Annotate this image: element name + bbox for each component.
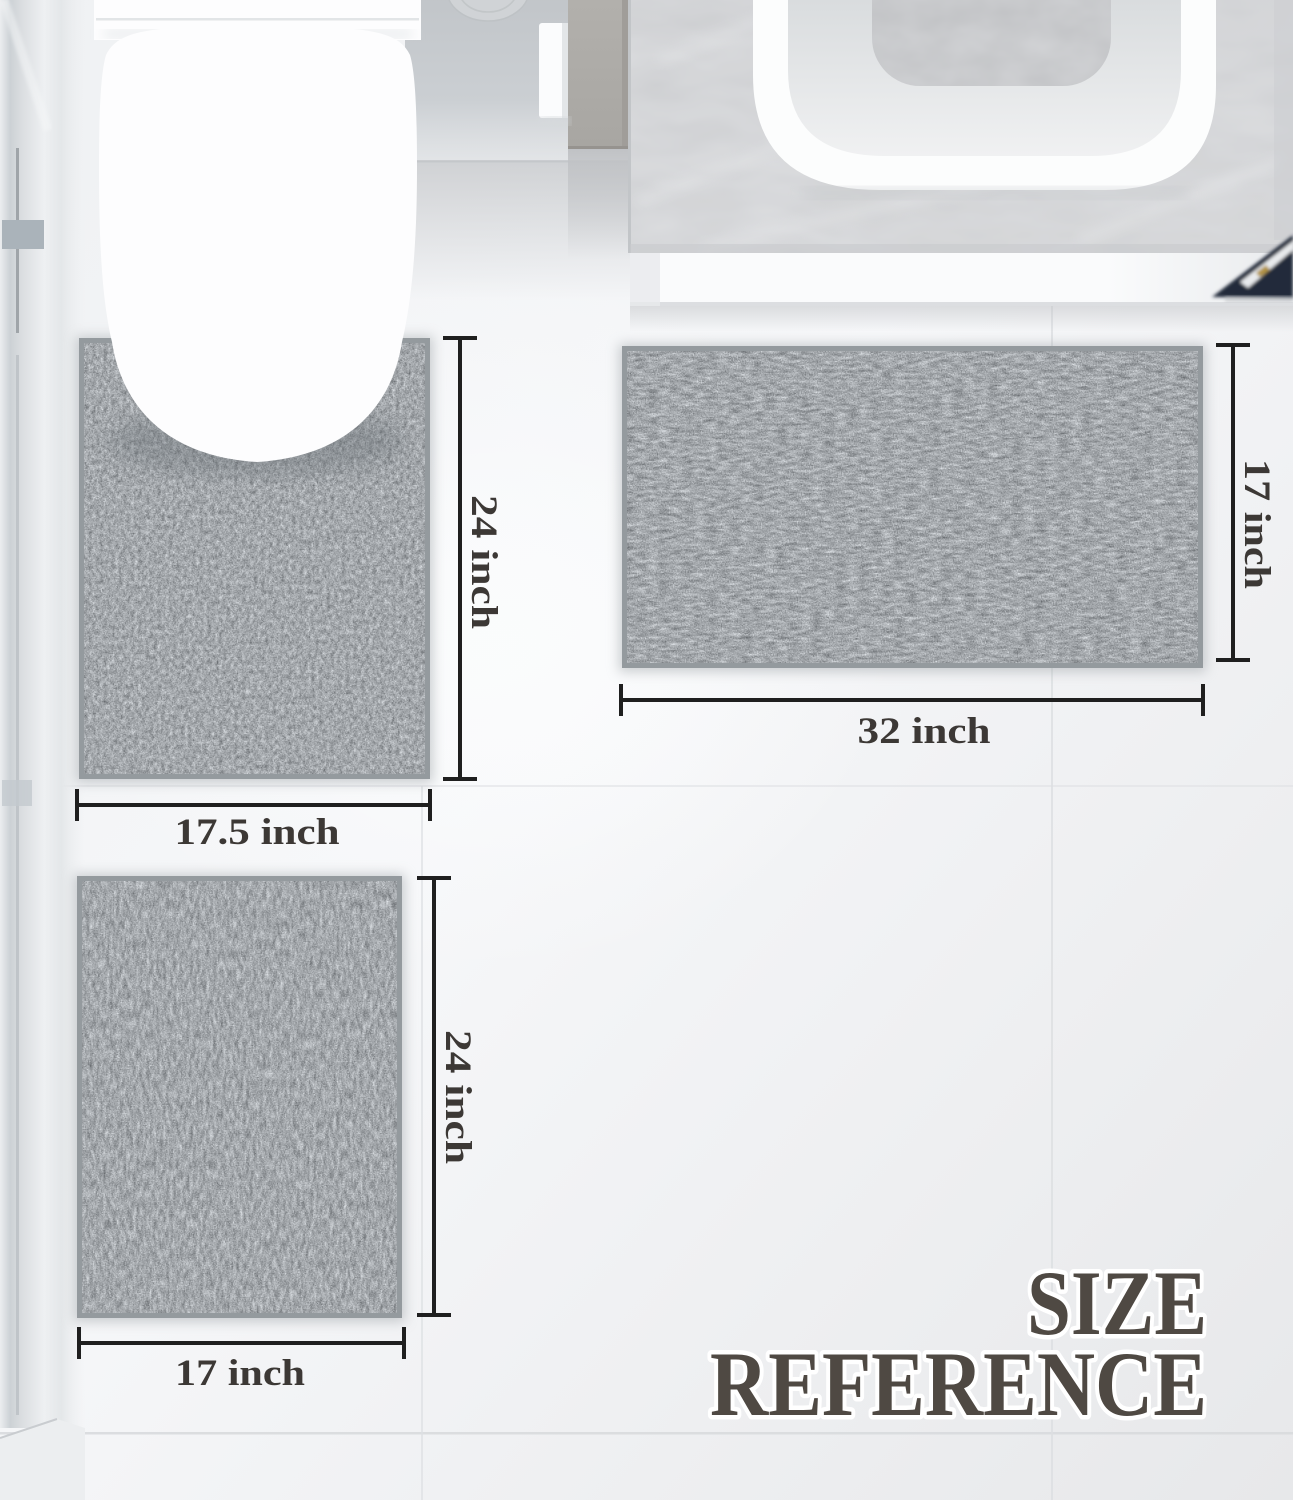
svg-text:17 inch: 17 inch [175, 1353, 305, 1394]
svg-text:32 inch: 32 inch [858, 711, 991, 752]
svg-text:24 inch: 24 inch [463, 495, 504, 629]
svg-text:17.5 inch: 17.5 inch [175, 812, 340, 853]
svg-text:24 inch: 24 inch [437, 1030, 478, 1164]
svg-text:17 inch: 17 inch [1236, 459, 1277, 589]
svg-text:REFERENCE: REFERENCE [710, 1333, 1207, 1435]
